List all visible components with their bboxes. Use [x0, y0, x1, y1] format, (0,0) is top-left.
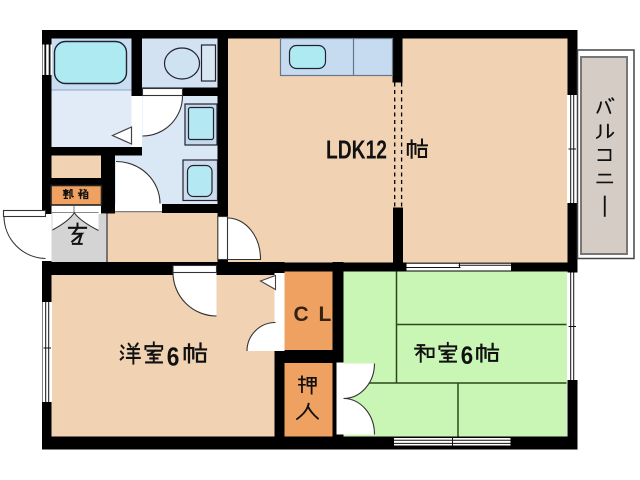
svg-text:6: 6 — [167, 342, 180, 372]
svg-text:LDK12: LDK12 — [326, 135, 387, 165]
svg-text:C: C — [294, 303, 309, 326]
svg-text:6: 6 — [461, 342, 473, 370]
svg-text:L: L — [319, 303, 332, 326]
